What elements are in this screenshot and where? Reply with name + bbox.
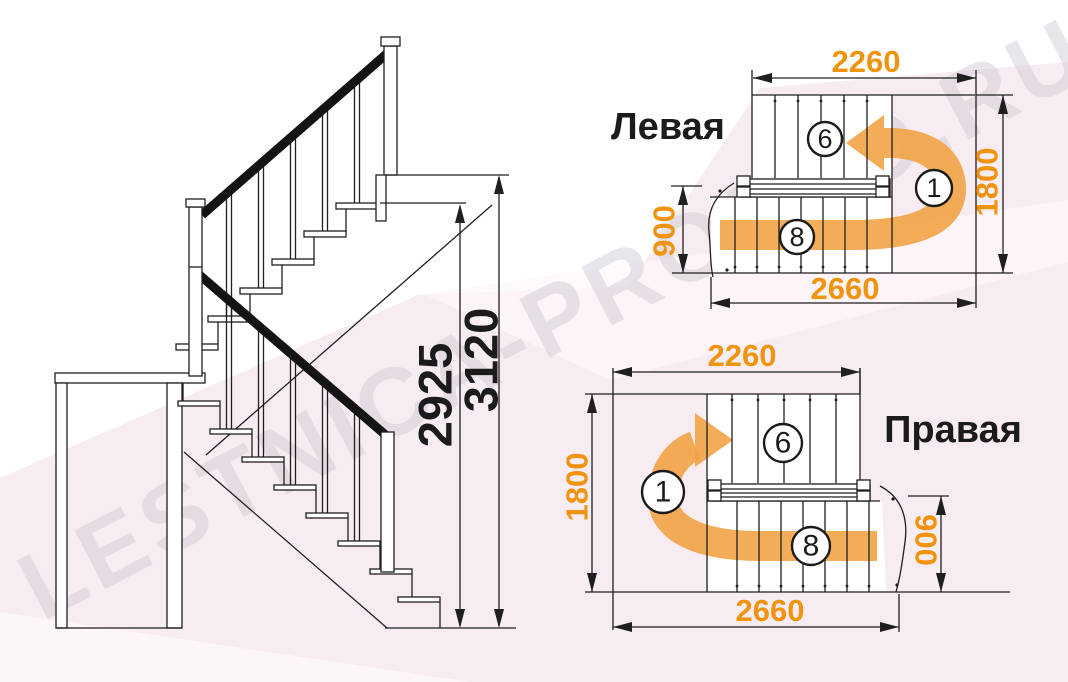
- step-count-lower: 8: [789, 222, 804, 252]
- dim-label: 2260: [832, 44, 901, 79]
- plan-right-title: Правая: [884, 409, 1022, 451]
- dim-label: 900: [909, 514, 944, 566]
- drawing-page: LESTNICA-PROSTO.RU: [0, 0, 1068, 682]
- step-badge-lower-left: 8: [780, 220, 814, 254]
- dim-label: 2660: [736, 593, 805, 628]
- step-badge-upper-left: 6: [808, 122, 842, 156]
- plan-left-title: Левая: [611, 106, 725, 148]
- step-number-first: 1: [926, 173, 941, 203]
- dim-label-3120: 3120: [455, 308, 508, 413]
- step-count-upper: 6: [817, 124, 832, 154]
- step-number-first: 1: [655, 476, 672, 509]
- dim-label: 2260: [708, 338, 777, 373]
- stair-diagram: LESTNICA-PROSTO.RU: [0, 0, 1068, 682]
- step-count-upper: 6: [775, 427, 792, 460]
- step-badge-upper-right: 6: [764, 424, 802, 462]
- step-badge-lower-right: 8: [792, 527, 830, 565]
- dim-label: 1800: [970, 148, 1005, 217]
- step-badge-first-left: 1: [916, 170, 952, 206]
- step-count-lower: 8: [803, 530, 820, 563]
- plan-left-joint-bar: [737, 176, 890, 197]
- dim-label: 1800: [560, 453, 595, 522]
- dim-label: 2660: [811, 271, 880, 306]
- dim-label: 900: [647, 205, 682, 257]
- step-badge-first-right: 1: [642, 471, 684, 513]
